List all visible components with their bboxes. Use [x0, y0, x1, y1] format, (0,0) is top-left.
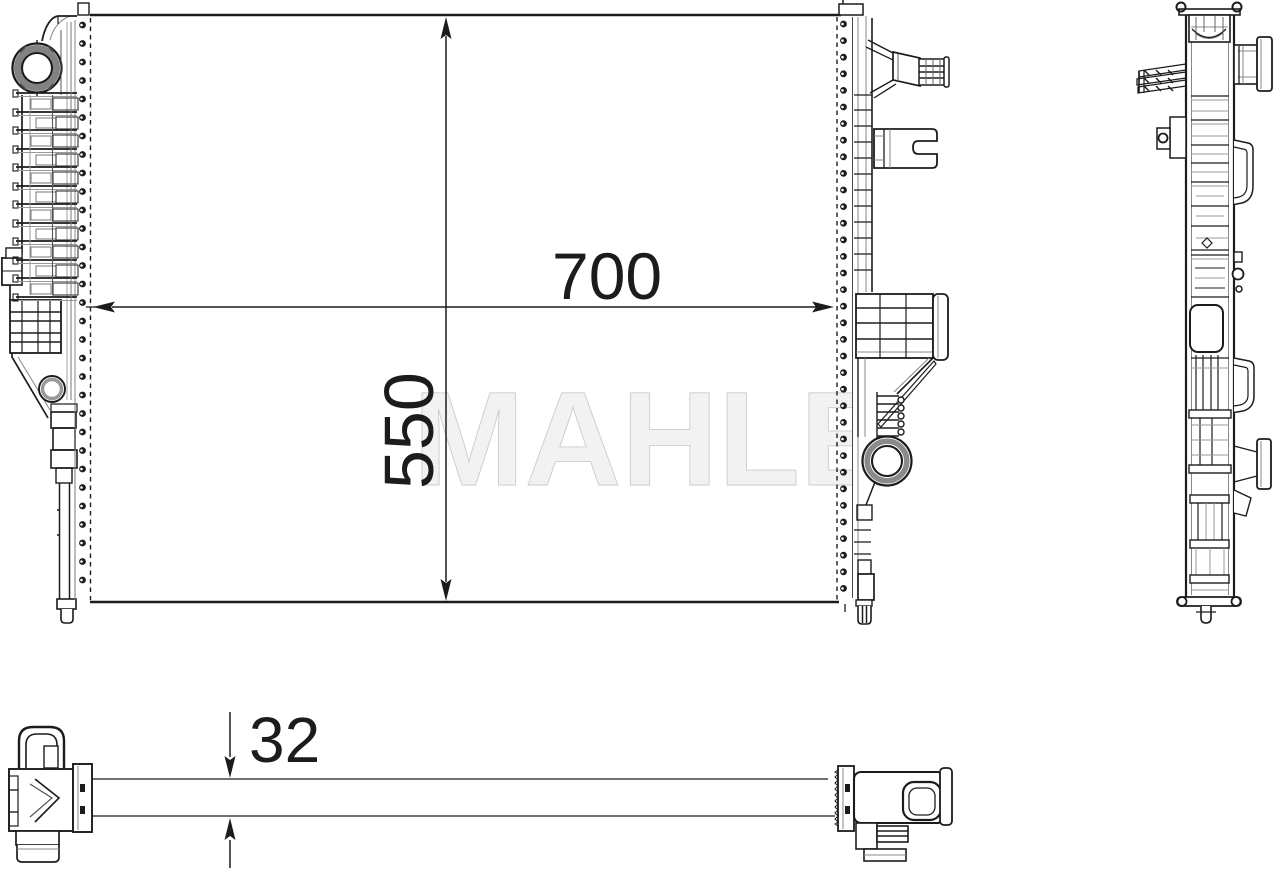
svg-text:32: 32: [249, 704, 320, 776]
svg-text:MAHLE: MAHLE: [413, 365, 889, 514]
svg-text:550: 550: [370, 372, 448, 489]
svg-text:700: 700: [552, 239, 662, 313]
